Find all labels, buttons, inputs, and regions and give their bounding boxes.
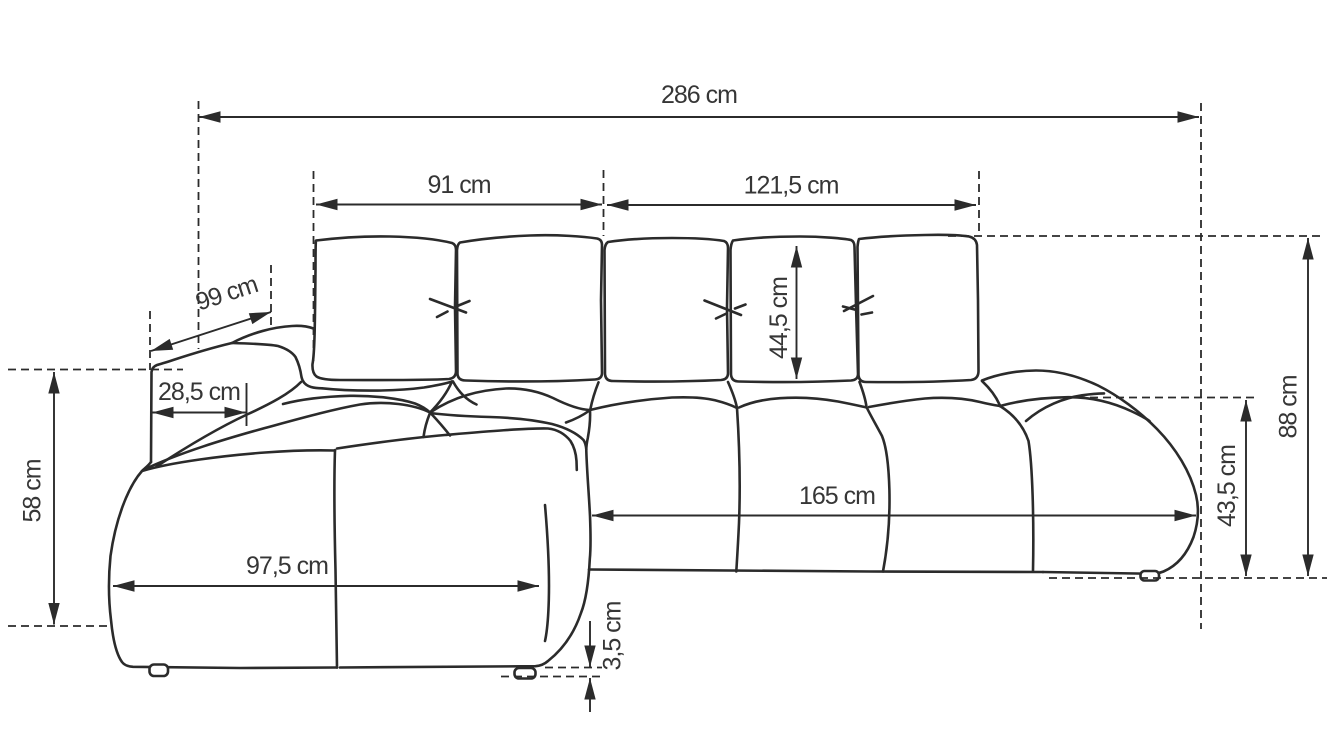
- svg-text:121,5 cm: 121,5 cm: [744, 172, 839, 200]
- svg-text:58 cm: 58 cm: [19, 459, 47, 522]
- svg-text:3,5 cm: 3,5 cm: [599, 601, 627, 670]
- svg-text:28,5 cm: 28,5 cm: [158, 378, 240, 406]
- svg-text:286 cm: 286 cm: [661, 81, 737, 109]
- svg-text:97,5 cm: 97,5 cm: [246, 552, 328, 580]
- svg-text:88 cm: 88 cm: [1275, 375, 1303, 438]
- svg-text:44,5 cm: 44,5 cm: [765, 277, 793, 359]
- svg-text:91 cm: 91 cm: [427, 171, 490, 199]
- svg-text:43,5 cm: 43,5 cm: [1213, 445, 1241, 527]
- svg-text:99 cm: 99 cm: [192, 270, 261, 316]
- svg-text:165 cm: 165 cm: [799, 482, 875, 510]
